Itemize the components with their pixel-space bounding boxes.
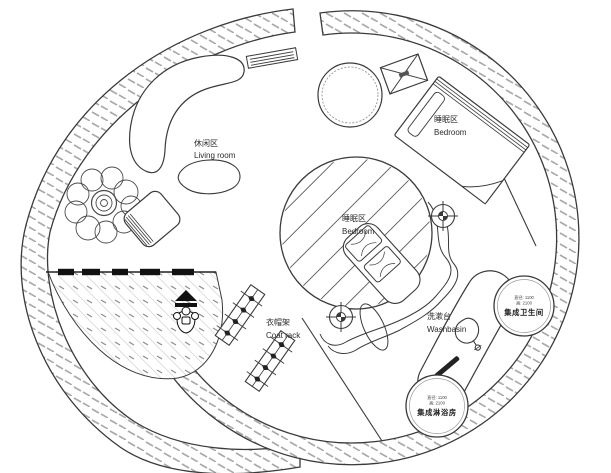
coat-rack-label-en: Coat rack — [266, 331, 301, 340]
washbasin-label-zh: 洗漱台 — [427, 311, 451, 321]
bedroom-center-label-en: Bedroom — [342, 227, 375, 236]
bedroom-center-label-zh: 睡眠区 — [342, 214, 366, 223]
coffee-table-icon — [178, 160, 240, 194]
floor-plan: 直径: 1100 高: 2100 集成卫生间 直径: 1100 高: 2100 … — [0, 0, 611, 473]
toilet-pod-label: 集成卫生间 — [503, 308, 543, 317]
shower-pod: 直径: 1100 高: 2100 集成淋浴房 — [406, 375, 468, 437]
coat-rack-label-zh: 衣帽架 — [266, 317, 290, 327]
toilet-pod-dim1: 直径: 1100 — [514, 294, 534, 300]
bedroom-upper-label-en: Bedroom — [434, 128, 467, 137]
washbasin-label-en: Washbasin — [427, 325, 466, 334]
shower-pod-label: 集成淋浴房 — [416, 408, 456, 417]
shower-pod-dim2: 高: 2100 — [429, 400, 446, 407]
shower-pod-dim1: 直径: 1100 — [427, 394, 447, 400]
bedroom-upper-label-zh: 睡眠区 — [434, 115, 458, 124]
toilet-pod: 直径: 1100 高: 2100 集成卫生间 — [494, 276, 554, 336]
round-table-icon — [318, 63, 382, 127]
toilet-pod-dim2: 高: 2100 — [516, 300, 533, 307]
living-room-label-zh: 休闲区 — [194, 138, 218, 148]
living-room-label-en: Living room — [194, 151, 236, 160]
